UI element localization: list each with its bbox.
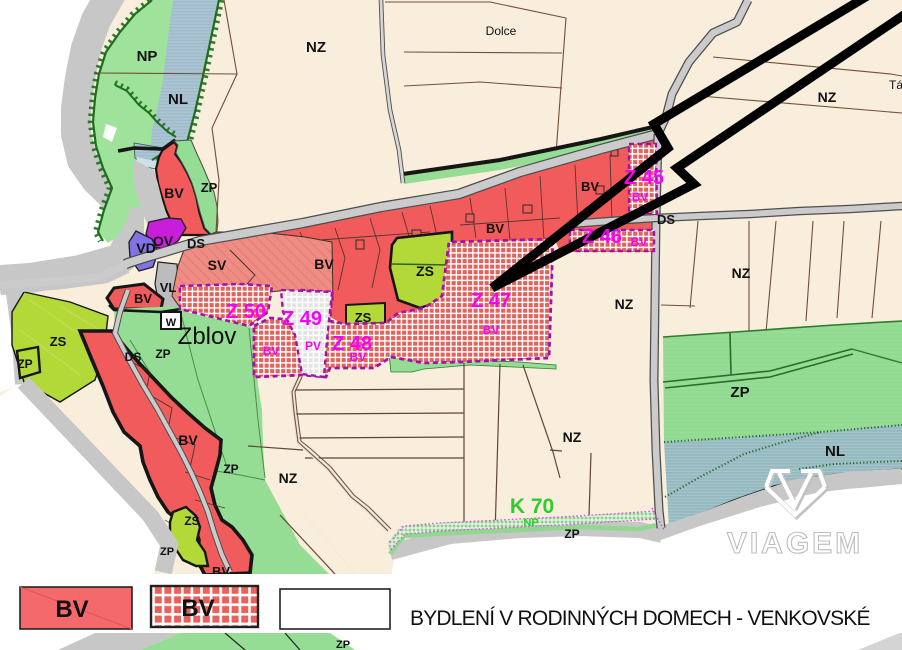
- svg-text:Z 49: Z 49: [282, 308, 322, 330]
- svg-text:Z 50: Z 50: [226, 301, 266, 323]
- svg-text:Z 47: Z 47: [471, 290, 511, 312]
- svg-text:W: W: [166, 317, 177, 329]
- svg-text:ZP: ZP: [730, 384, 749, 401]
- svg-text:NZ: NZ: [563, 429, 582, 445]
- svg-text:NP: NP: [523, 517, 538, 529]
- svg-text:ZP: ZP: [17, 357, 32, 371]
- svg-text:DS: DS: [187, 236, 205, 251]
- svg-text:BV: BV: [486, 221, 504, 236]
- svg-text:BV: BV: [631, 235, 648, 249]
- svg-text:NP: NP: [137, 48, 158, 65]
- svg-text:Z 45: Z 45: [624, 167, 664, 189]
- svg-text:ZP: ZP: [223, 462, 238, 476]
- svg-text:Zblov: Zblov: [178, 323, 237, 350]
- svg-text:BV: BV: [178, 432, 198, 448]
- svg-text:K 70: K 70: [510, 495, 554, 518]
- svg-text:BV: BV: [134, 291, 152, 306]
- svg-text:BV: BV: [581, 179, 599, 194]
- svg-text:Dolce: Dolce: [486, 24, 517, 38]
- svg-text:BV: BV: [55, 596, 88, 623]
- svg-text:NZ: NZ: [615, 296, 634, 312]
- svg-text:PV: PV: [305, 339, 321, 353]
- svg-text:Tá: Tá: [889, 78, 902, 92]
- svg-text:NZ: NZ: [279, 470, 298, 486]
- svg-text:OV: OV: [153, 233, 174, 249]
- svg-text:BV: BV: [314, 256, 334, 272]
- svg-text:NZ: NZ: [306, 39, 326, 56]
- svg-text:BV: BV: [483, 323, 500, 337]
- svg-text:ZP: ZP: [564, 527, 579, 541]
- svg-text:ZP: ZP: [155, 347, 170, 361]
- svg-text:VD: VD: [136, 240, 155, 256]
- svg-text:DS: DS: [125, 350, 142, 364]
- svg-text:ZP: ZP: [201, 180, 218, 195]
- svg-text:ZS: ZS: [184, 514, 199, 528]
- svg-text:NL: NL: [825, 443, 845, 460]
- svg-text:BV: BV: [263, 344, 280, 358]
- svg-text:VIAGEM: VIAGEM: [727, 527, 863, 560]
- svg-text:NL: NL: [168, 91, 188, 108]
- svg-text:NZ: NZ: [732, 265, 751, 281]
- svg-text:VL: VL: [160, 280, 177, 295]
- svg-text:BYDLENÍ V RODINNÝCH DOMECH - V: BYDLENÍ V RODINNÝCH DOMECH - VENKOVSKÉ: [410, 607, 870, 630]
- svg-text:Z 46: Z 46: [582, 226, 622, 248]
- svg-text:ZP: ZP: [160, 546, 174, 558]
- svg-text:NZ: NZ: [818, 89, 837, 105]
- svg-text:BV: BV: [181, 595, 214, 622]
- svg-text:BV: BV: [632, 190, 649, 204]
- svg-text:ZS: ZS: [50, 334, 67, 349]
- svg-text:ZS: ZS: [416, 263, 434, 279]
- svg-text:BV: BV: [350, 350, 367, 364]
- svg-text:ZP: ZP: [336, 639, 350, 650]
- svg-text:ZS: ZS: [355, 310, 372, 325]
- svg-text:BV: BV: [164, 185, 184, 201]
- svg-text:DS: DS: [657, 212, 675, 227]
- svg-text:SV: SV: [208, 257, 227, 273]
